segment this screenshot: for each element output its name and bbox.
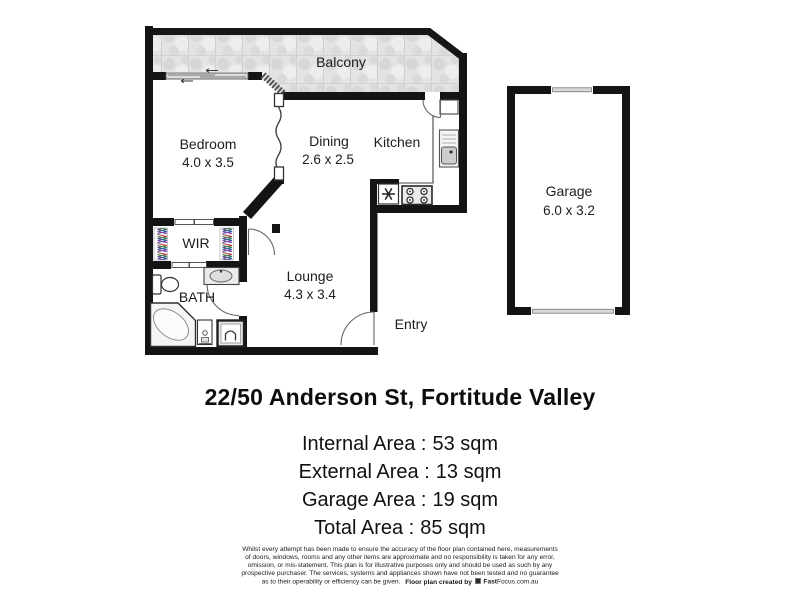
balcony-area: [145, 32, 463, 93]
pedestal-basin-icon: [198, 320, 213, 345]
area-value: 19 sqm: [432, 489, 498, 511]
area-value: 13 sqm: [436, 461, 502, 483]
kitchen-fixtures: [379, 100, 459, 205]
balcony-tiles: [153, 35, 460, 92]
area-line-external: External Area :13 sqm: [0, 458, 800, 486]
area-line-garage: Garage Area :19 sqm: [0, 486, 800, 514]
garage-door: [533, 309, 614, 313]
area-summary: Internal Area :53 sqm External Area :13 …: [0, 430, 800, 542]
bath-fixtures: [148, 268, 244, 347]
area-value: 85 sqm: [420, 517, 486, 539]
wardrobe-hatch-left: [154, 228, 168, 260]
fastfocus-logo-icon: [475, 578, 481, 584]
brand-name-bold: Fast: [483, 579, 497, 586]
bathtub-icon: [148, 302, 196, 346]
wall: [440, 92, 459, 100]
room-dims-dining: 2.6 x 2.5: [302, 152, 354, 167]
disclaimer-text: Whilst every attempt has been made to en…: [0, 546, 800, 587]
wall: [370, 205, 467, 213]
wall: [145, 347, 378, 355]
wall: [214, 218, 247, 226]
brand-name-rest: Focus.com.au: [497, 579, 538, 586]
credit-prefix: Floor plan created by: [405, 579, 472, 586]
disclaimer-credit-line: as to their operability or efficiency ca…: [0, 578, 800, 587]
floor-plan-page: { "floor_plan": { "rooms": { "balcony": …: [0, 0, 800, 600]
floor-plan-image: Balcony Bedroom 4.0 x 3.5 Dining 2.6 x 2…: [0, 0, 800, 375]
balcony-door-arc: [423, 100, 441, 118]
wall: [281, 92, 425, 100]
dishwasher-icon: [379, 184, 399, 204]
vanity-basin-icon: [204, 268, 239, 285]
hall-door-arc: [249, 229, 275, 255]
wall: [145, 218, 174, 226]
area-line-total: Total Area :85 sqm: [0, 514, 800, 542]
room-label-entry: Entry: [395, 316, 428, 332]
bedroom-corner-wall: [243, 175, 284, 219]
room-label-bedroom: Bedroom: [180, 136, 237, 152]
room-label-lounge: Lounge: [287, 268, 334, 284]
sink-icon: [440, 130, 459, 167]
disclaimer-line: omission, or mis-statement. This plan is…: [0, 562, 800, 570]
room-label-balcony: Balcony: [316, 54, 366, 70]
room-dims-garage: 6.0 x 3.2: [543, 203, 595, 218]
bedroom-dining-divider: [275, 94, 284, 181]
wardrobe-hatch-right: [220, 228, 234, 260]
door-strike-post: [272, 224, 280, 233]
area-label: Total Area :: [314, 517, 414, 539]
wall: [145, 261, 171, 269]
shower-icon: [218, 321, 245, 347]
area-label: Internal Area :: [302, 433, 427, 455]
entry-door-arc: [341, 312, 374, 345]
garage-rear-opening: [553, 88, 592, 92]
room-dims-bedroom: 4.0 x 3.5: [182, 155, 234, 170]
room-label-garage: Garage: [546, 183, 593, 199]
fridge-icon: [440, 100, 458, 114]
room-label-dining: Dining: [309, 133, 349, 149]
room-label-kitchen: Kitchen: [374, 134, 421, 150]
area-value: 53 sqm: [432, 433, 498, 455]
property-address-title: 22/50 Anderson St, Fortitude Valley: [0, 384, 800, 411]
stove-icon: [402, 186, 432, 205]
disclaimer-line: Whilst every attempt has been made to en…: [0, 546, 800, 554]
wall: [370, 179, 377, 207]
wall: [370, 213, 378, 312]
area-label: Garage Area :: [302, 489, 427, 511]
wall: [377, 179, 399, 184]
room-dims-lounge: 4.3 x 3.4: [284, 287, 336, 302]
disclaimer-line: prospective purchaser. The services, sys…: [0, 570, 800, 578]
disclaimer-line: as to their operability or efficiency ca…: [262, 579, 401, 586]
disclaimer-line: of doors, windows, rooms and any other i…: [0, 554, 800, 562]
area-line-internal: Internal Area :53 sqm: [0, 430, 800, 458]
wall: [622, 86, 630, 315]
wall: [145, 72, 166, 80]
room-label-wir: WIR: [182, 235, 209, 251]
wall: [459, 53, 467, 213]
wall: [248, 72, 262, 80]
area-label: External Area :: [299, 461, 430, 483]
wall: [507, 86, 515, 315]
garage-structure: [507, 86, 630, 315]
toilet-icon: [153, 275, 179, 294]
room-label-bath: BATH: [179, 289, 215, 305]
